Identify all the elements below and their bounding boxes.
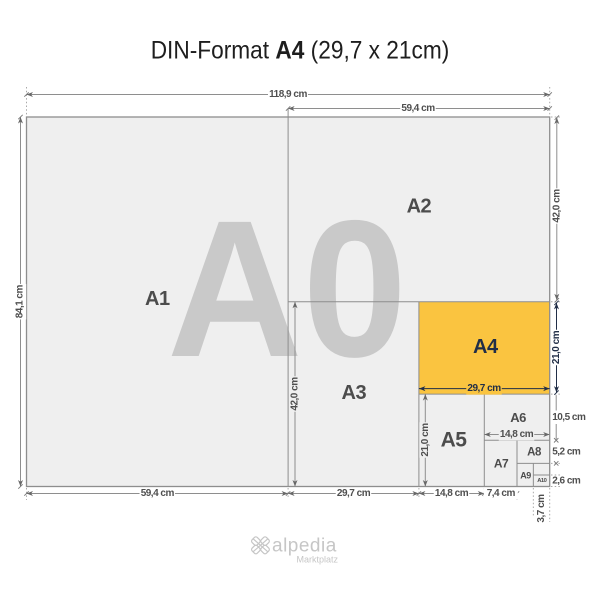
svg-text:7,4 cm: 7,4 cm xyxy=(487,488,516,499)
svg-text:A6: A6 xyxy=(510,410,526,425)
svg-text:84,1 cm: 84,1 cm xyxy=(15,284,26,318)
svg-text:42,0 cm: 42,0 cm xyxy=(551,189,562,223)
svg-text:21,0 cm: 21,0 cm xyxy=(420,423,431,457)
svg-text:A4: A4 xyxy=(473,336,499,358)
svg-text:3,7 cm: 3,7 cm xyxy=(536,494,547,523)
svg-text:21,0 cm: 21,0 cm xyxy=(551,330,562,364)
svg-text:10,5 cm: 10,5 cm xyxy=(552,412,586,423)
svg-text:A1: A1 xyxy=(145,288,170,310)
svg-text:Marktplatz: Marktplatz xyxy=(296,555,338,565)
svg-text:A9: A9 xyxy=(520,470,531,480)
svg-text:A3: A3 xyxy=(342,382,367,404)
svg-text:42,0 cm: 42,0 cm xyxy=(290,377,301,411)
svg-text:alpedia: alpedia xyxy=(272,536,337,557)
svg-text:59,4 cm: 59,4 cm xyxy=(401,103,435,114)
svg-text:29,7 cm: 29,7 cm xyxy=(337,488,371,499)
svg-text:A2: A2 xyxy=(407,196,432,218)
svg-text:59,4 cm: 59,4 cm xyxy=(141,488,175,499)
svg-text:A0: A0 xyxy=(167,180,407,398)
svg-text:A8: A8 xyxy=(527,447,542,459)
svg-text:5,2 cm: 5,2 cm xyxy=(552,447,581,458)
svg-text:A5: A5 xyxy=(441,428,468,451)
svg-text:14,8 cm: 14,8 cm xyxy=(500,429,534,440)
svg-text:A10: A10 xyxy=(537,478,546,484)
svg-text:2,6 cm: 2,6 cm xyxy=(552,475,581,486)
svg-text:29,7 cm: 29,7 cm xyxy=(467,383,501,394)
svg-text:DIN-Format A4 (29,7 x 21cm): DIN-Format A4 (29,7 x 21cm) xyxy=(151,36,450,64)
svg-text:A7: A7 xyxy=(494,456,509,470)
svg-text:14,8 cm: 14,8 cm xyxy=(435,488,469,499)
svg-text:118,9 cm: 118,9 cm xyxy=(269,89,307,100)
